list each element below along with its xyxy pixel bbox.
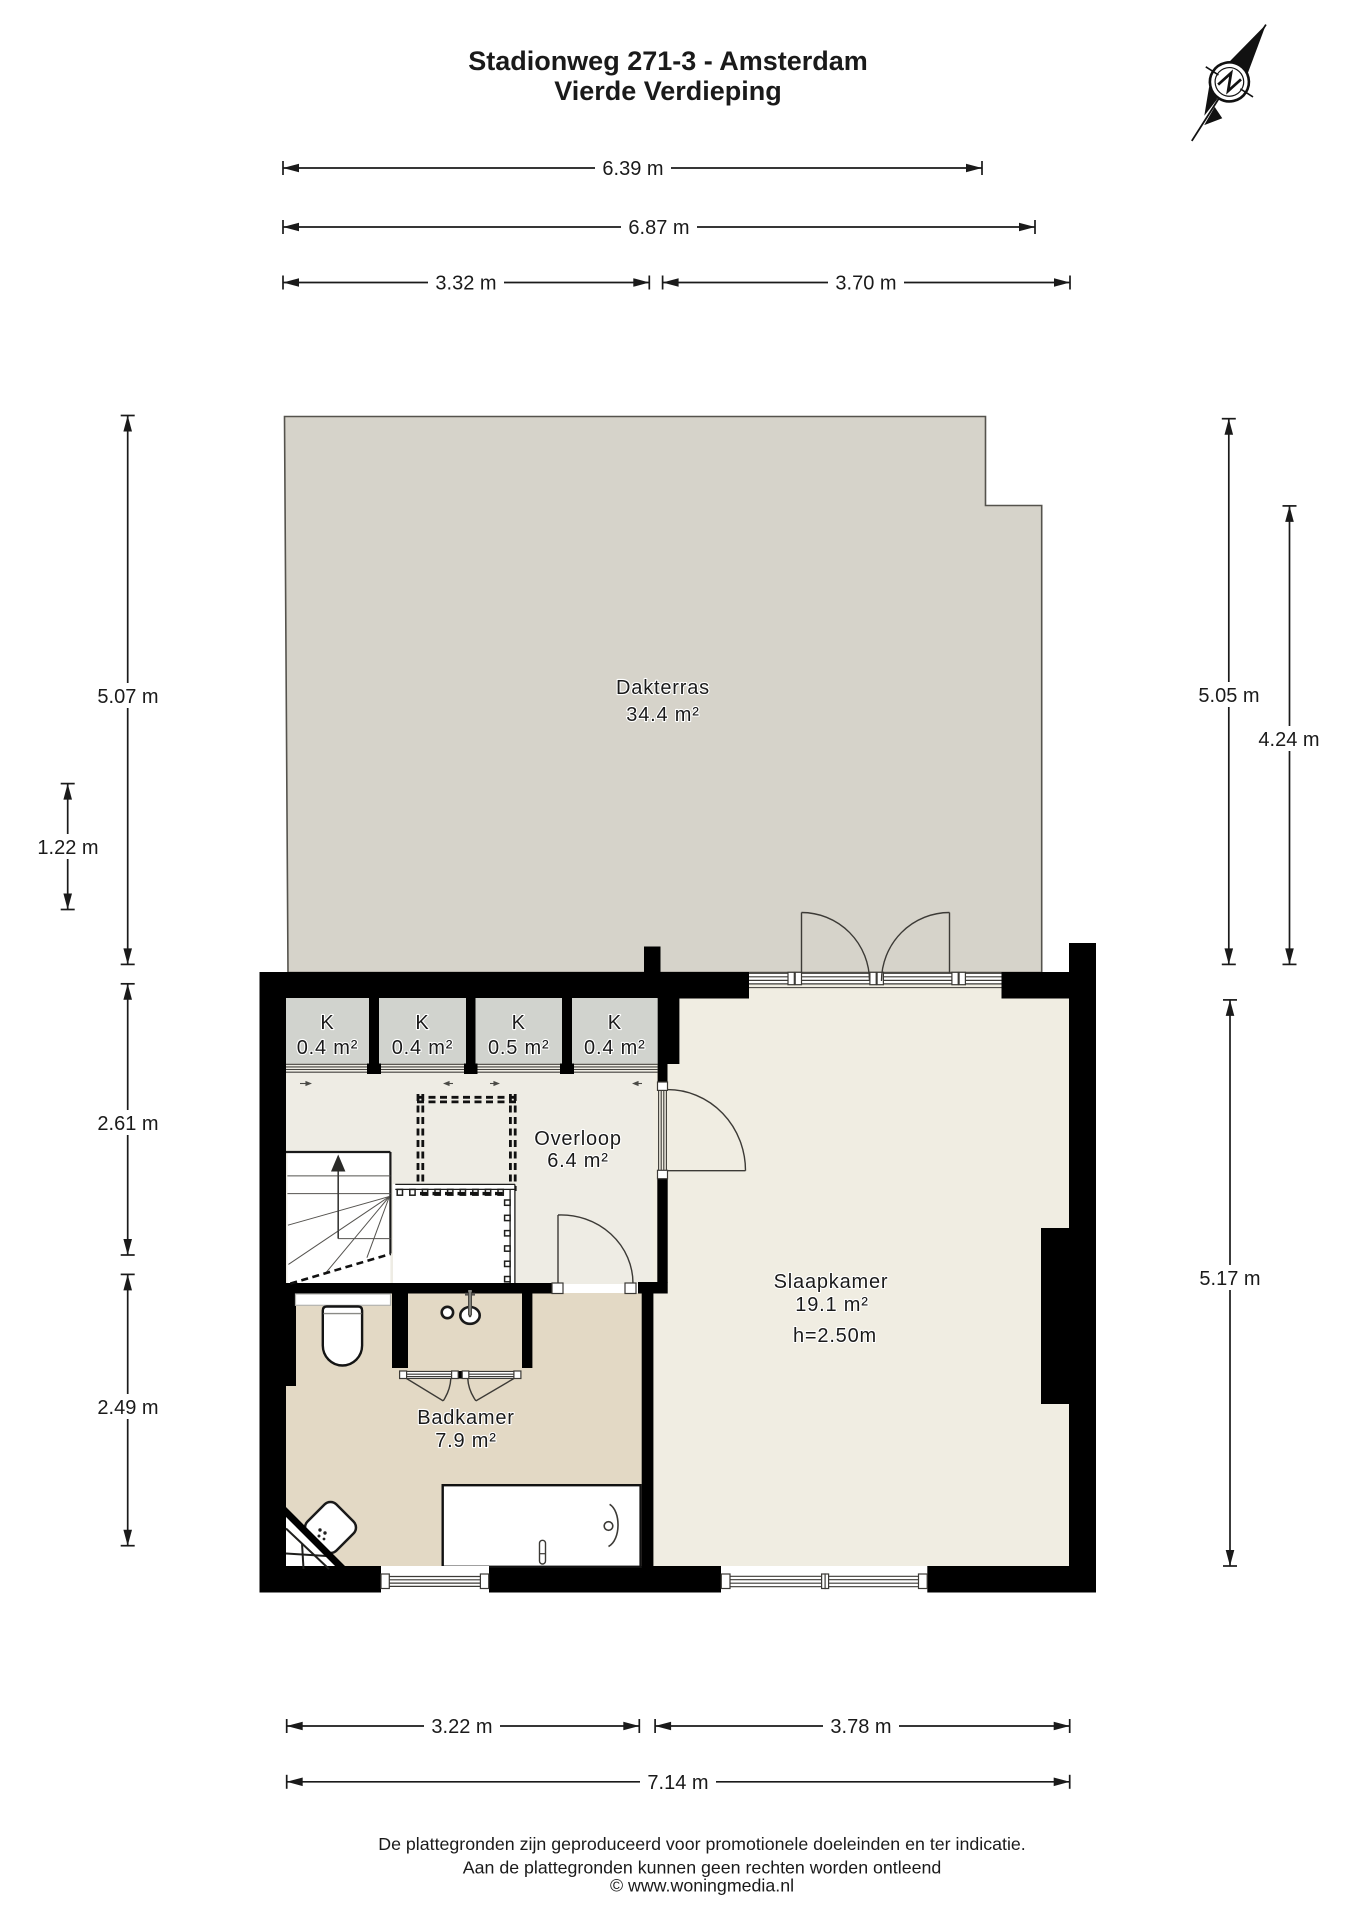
svg-text:Aan de plattegronden kunnen ge: Aan de plattegronden kunnen geen rechten… bbox=[463, 1858, 942, 1878]
svg-text:4.24 m: 4.24 m bbox=[1258, 729, 1319, 751]
svg-text:2.61 m: 2.61 m bbox=[97, 1113, 158, 1135]
svg-text:h=2.50m: h=2.50m bbox=[793, 1325, 877, 1347]
svg-text:7.9 m²: 7.9 m² bbox=[435, 1430, 496, 1452]
svg-text:34.4 m²: 34.4 m² bbox=[626, 704, 699, 726]
svg-text:5.07 m: 5.07 m bbox=[97, 686, 158, 708]
svg-text:Stadionweg 271-3 - Amsterdam: Stadionweg 271-3 - Amsterdam bbox=[468, 46, 868, 76]
svg-text:K: K bbox=[415, 1012, 429, 1034]
svg-text:5.17 m: 5.17 m bbox=[1199, 1268, 1260, 1290]
svg-text:3.78 m: 3.78 m bbox=[830, 1716, 891, 1738]
svg-text:Vierde Verdieping: Vierde Verdieping bbox=[554, 76, 782, 106]
svg-text:De plattegronden zijn geproduc: De plattegronden zijn geproduceerd voor … bbox=[378, 1834, 1025, 1854]
svg-text:Slaapkamer: Slaapkamer bbox=[774, 1271, 889, 1293]
svg-text:3.70 m: 3.70 m bbox=[835, 273, 896, 295]
svg-text:7.14 m: 7.14 m bbox=[647, 1772, 708, 1794]
svg-text:Overloop: Overloop bbox=[534, 1128, 622, 1150]
svg-text:Badkamer: Badkamer bbox=[417, 1407, 515, 1429]
svg-text:6.87 m: 6.87 m bbox=[628, 217, 689, 239]
svg-text:0.4 m²: 0.4 m² bbox=[297, 1037, 358, 1059]
svg-text:© www.woningmedia.nl: © www.woningmedia.nl bbox=[610, 1876, 794, 1896]
svg-text:2.49 m: 2.49 m bbox=[97, 1397, 158, 1419]
svg-text:6.39 m: 6.39 m bbox=[602, 158, 663, 180]
svg-text:0.4 m²: 0.4 m² bbox=[584, 1037, 645, 1059]
svg-text:K: K bbox=[608, 1012, 622, 1034]
svg-text:3.22 m: 3.22 m bbox=[431, 1716, 492, 1738]
svg-text:5.05 m: 5.05 m bbox=[1198, 685, 1259, 707]
svg-text:6.4 m²: 6.4 m² bbox=[547, 1150, 608, 1172]
svg-text:3.32 m: 3.32 m bbox=[435, 273, 496, 295]
svg-text:19.1 m²: 19.1 m² bbox=[795, 1294, 868, 1316]
svg-text:Dakterras: Dakterras bbox=[616, 677, 710, 699]
svg-text:K: K bbox=[320, 1012, 334, 1034]
svg-text:K: K bbox=[512, 1012, 526, 1034]
svg-text:0.5 m²: 0.5 m² bbox=[488, 1037, 549, 1059]
svg-text:1.22 m: 1.22 m bbox=[37, 837, 98, 859]
svg-text:0.4 m²: 0.4 m² bbox=[392, 1037, 453, 1059]
